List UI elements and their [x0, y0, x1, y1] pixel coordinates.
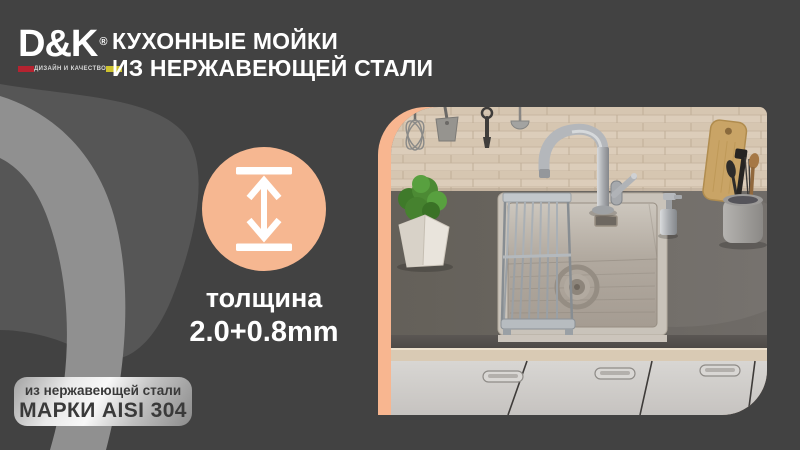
steel-grade-badge: из нержавеющей стали МАРКИ AISI 304 — [14, 377, 192, 426]
page-title-line1: КУХОННЫЕ МОЙКИ — [112, 28, 433, 55]
overflow-slot — [595, 216, 617, 226]
brand-logo-text: D&K® — [18, 24, 110, 64]
tagline-red-bar — [18, 66, 34, 72]
thickness-double-arrow-icon — [236, 167, 292, 251]
page-title: КУХОННЫЕ МОЙКИ ИЗ НЕРЖАВЕЮЩЕЙ СТАЛИ — [112, 28, 433, 82]
steel-grade-line2: МАРКИ AISI 304 — [14, 399, 192, 423]
thickness-value: 2.0+0.8mm — [144, 315, 384, 349]
feature-circle — [202, 147, 326, 271]
registered-mark: ® — [99, 22, 106, 62]
steel-grade-line1: из нержавеющей стали — [14, 383, 192, 399]
brand-tagline-row: ДИЗАЙН И КАЧЕСТВО — [18, 66, 110, 72]
page-title-line2: ИЗ НЕРЖАВЕЮЩЕЙ СТАЛИ — [112, 55, 433, 82]
kitchen-scene-illustration — [391, 107, 767, 415]
thickness-label: толщина — [144, 282, 384, 315]
kitchen-photo — [391, 107, 767, 415]
feature-text-block: толщина 2.0+0.8mm — [144, 282, 384, 349]
cabinets — [391, 361, 767, 415]
product-photo-card — [378, 107, 767, 415]
brand-logo: D&K® ДИЗАЙН И КАЧЕСТВО — [18, 24, 110, 72]
brand-tagline: ДИЗАЙН И КАЧЕСТВО — [34, 66, 106, 72]
counter-front-edge — [391, 335, 767, 361]
promo-banner: D&K® ДИЗАЙН И КАЧЕСТВО КУХОННЫЕ МОЙКИ ИЗ… — [0, 0, 800, 450]
